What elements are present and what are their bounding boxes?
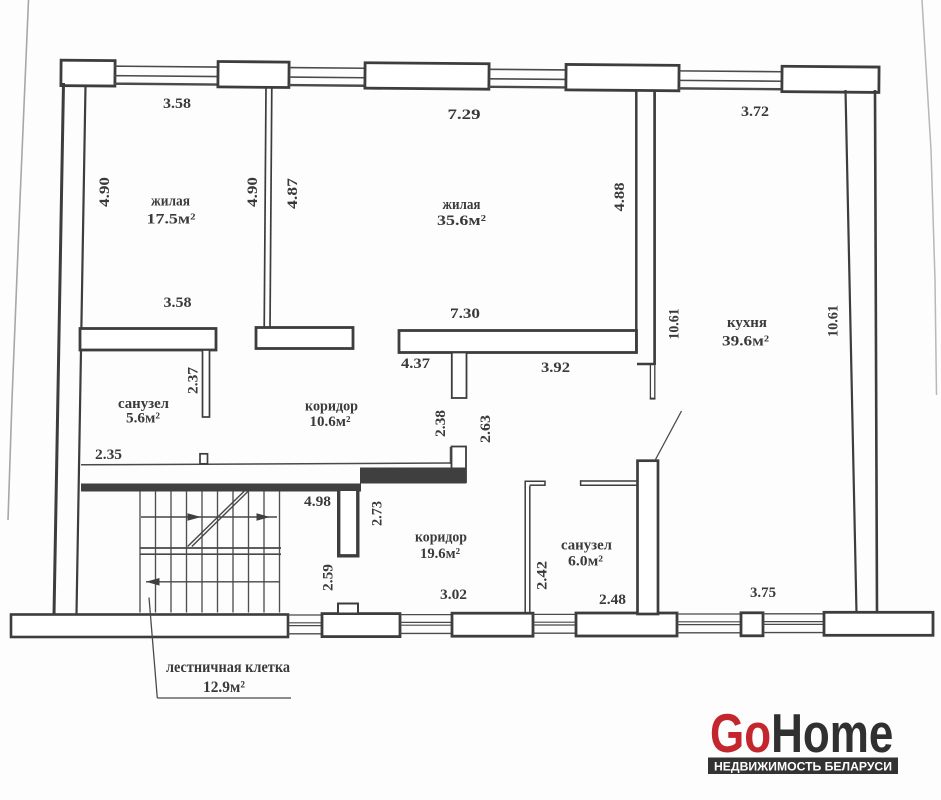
svg-text:10.61: 10.61	[826, 305, 842, 337]
svg-text:2.73: 2.73	[370, 501, 386, 526]
svg-text:кухня: кухня	[727, 315, 767, 331]
svg-text:санузел: санузел	[561, 537, 613, 553]
svg-text:7.30: 7.30	[450, 306, 480, 322]
svg-text:39.6м²: 39.6м²	[722, 333, 770, 349]
svg-text:4.90: 4.90	[97, 177, 113, 207]
svg-text:лестничная клетка: лестничная клетка	[166, 659, 290, 676]
svg-text:4.98: 4.98	[304, 494, 331, 510]
svg-text:4.90: 4.90	[245, 177, 261, 207]
svg-text:3.58: 3.58	[164, 295, 192, 311]
svg-text:коридор: коридор	[415, 529, 467, 545]
svg-text:3.58: 3.58	[163, 96, 191, 112]
svg-text:жилая: жилая	[443, 197, 481, 213]
svg-text:2.38: 2.38	[433, 410, 449, 437]
svg-text:2.59: 2.59	[321, 564, 337, 591]
svg-text:6.0м²: 6.0м²	[568, 553, 604, 569]
svg-text:2.42: 2.42	[535, 561, 551, 590]
svg-text:19.6м²: 19.6м²	[420, 546, 460, 562]
svg-text:10.6м²: 10.6м²	[310, 414, 351, 430]
svg-text:2.37: 2.37	[186, 367, 202, 394]
svg-text:4.37: 4.37	[401, 356, 430, 372]
svg-text:2.35: 2.35	[95, 447, 122, 463]
svg-text:3.02: 3.02	[440, 587, 467, 603]
svg-text:3.92: 3.92	[541, 360, 570, 376]
svg-text:35.6м²: 35.6м²	[437, 213, 487, 229]
svg-text:GoHome: GoHome	[710, 702, 893, 764]
svg-text:5.6м²: 5.6м²	[126, 410, 161, 426]
svg-text:жилая: жилая	[151, 193, 190, 209]
svg-text:17.5м²: 17.5м²	[147, 211, 197, 227]
svg-text:2.63: 2.63	[478, 415, 494, 443]
svg-text:4.87: 4.87	[285, 178, 301, 209]
svg-text:3.75: 3.75	[750, 585, 776, 601]
svg-text:12.9м²: 12.9м²	[203, 679, 245, 696]
svg-text:НЕДВИЖИМОСТЬ БЕЛАРУСИ: НЕДВИЖИМОСТЬ БЕЛАРУСИ	[714, 759, 892, 773]
svg-text:7.29: 7.29	[448, 107, 481, 123]
svg-text:коридор: коридор	[305, 398, 358, 414]
svg-text:2.48: 2.48	[599, 592, 626, 608]
svg-text:3.72: 3.72	[741, 104, 769, 120]
svg-text:4.88: 4.88	[612, 183, 628, 212]
svg-text:10.61: 10.61	[667, 309, 683, 340]
